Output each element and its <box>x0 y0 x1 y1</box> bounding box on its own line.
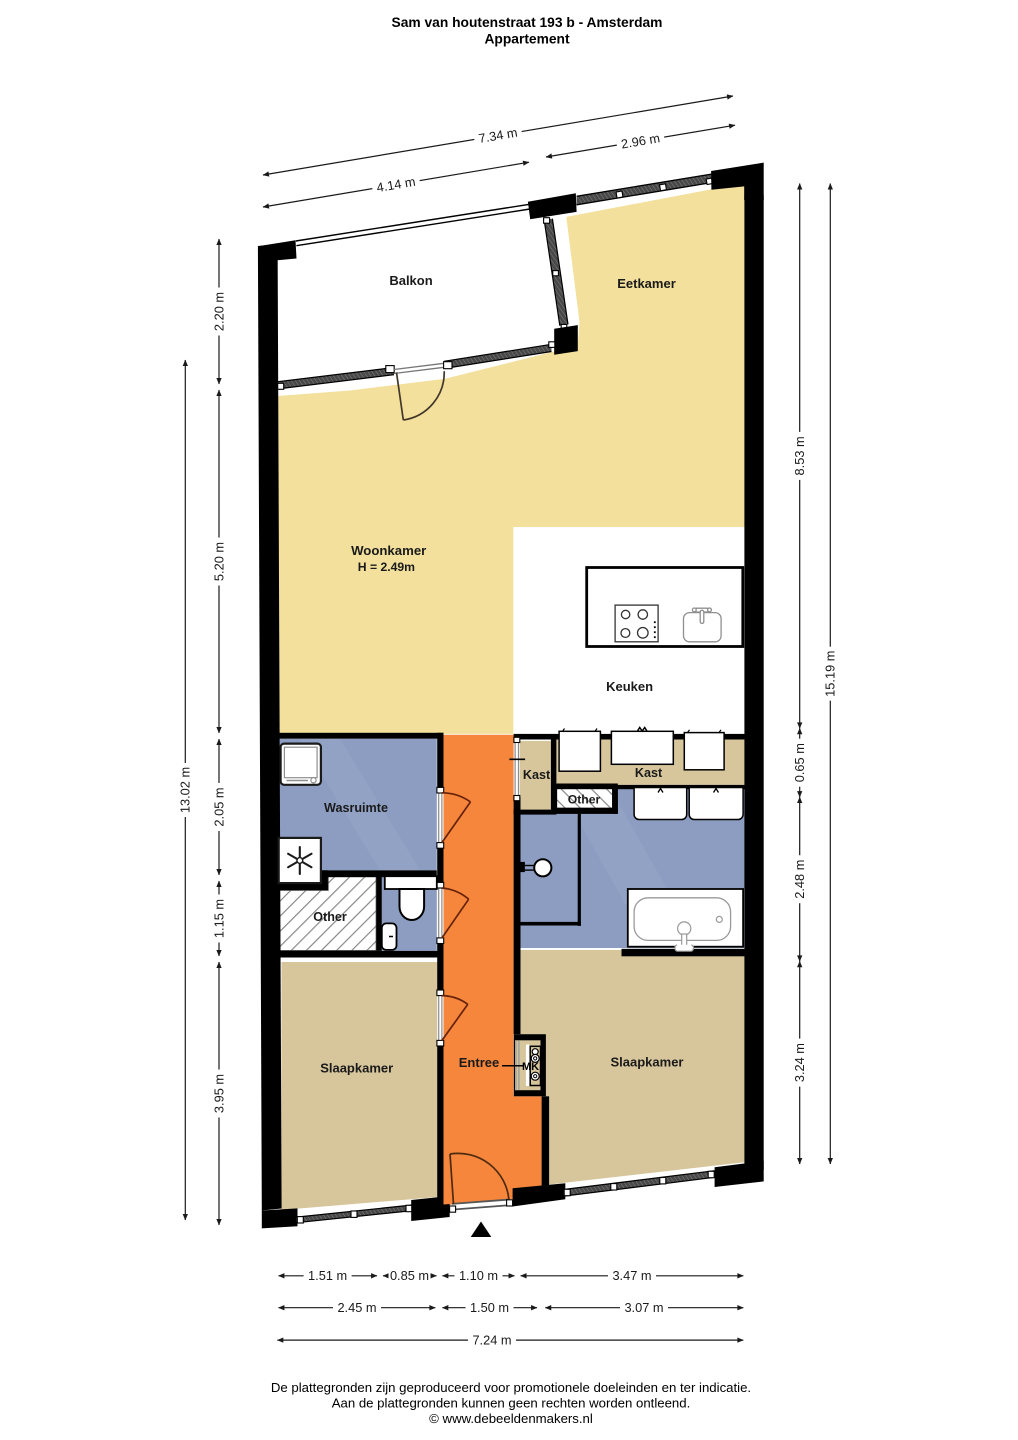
svg-text:Kast: Kast <box>523 768 551 782</box>
svg-text:Other: Other <box>568 793 601 807</box>
svg-text:Woonkamer: Woonkamer <box>351 543 426 558</box>
svg-text:1.15 m: 1.15 m <box>211 899 226 938</box>
svg-text:2.48 m: 2.48 m <box>792 860 807 899</box>
svg-text:MK: MK <box>522 1061 539 1073</box>
svg-text:15.19 m: 15.19 m <box>823 651 838 697</box>
svg-text:Balkon: Balkon <box>389 273 432 288</box>
svg-text:13.02 m: 13.02 m <box>178 767 193 813</box>
svg-text:1.50 m: 1.50 m <box>470 1300 509 1315</box>
svg-text:Keuken: Keuken <box>606 679 653 694</box>
svg-text:1.51 m: 1.51 m <box>308 1268 347 1283</box>
svg-text:Slaapkamer: Slaapkamer <box>320 1061 393 1076</box>
svg-text:2.05 m: 2.05 m <box>211 787 226 826</box>
svg-text:7.24 m: 7.24 m <box>472 1332 511 1347</box>
svg-text:Entree: Entree <box>459 1055 499 1070</box>
svg-text:H = 2.49m: H = 2.49m <box>358 560 415 574</box>
svg-text:0.65 m: 0.65 m <box>792 743 807 782</box>
svg-text:Other: Other <box>313 910 347 924</box>
svg-text:Kast: Kast <box>635 766 663 780</box>
svg-text:3.07 m: 3.07 m <box>624 1300 663 1315</box>
svg-text:2.20 m: 2.20 m <box>211 292 226 331</box>
svg-text:Aan de plattegronden kunnen ge: Aan de plattegronden kunnen geen rechten… <box>332 1396 691 1411</box>
svg-text:3.24 m: 3.24 m <box>792 1043 807 1082</box>
svg-text:3.95 m: 3.95 m <box>211 1074 226 1113</box>
svg-text:De plattegronden zijn geproduc: De plattegronden zijn geproduceerd voor … <box>271 1380 751 1395</box>
svg-text:Wasruimte: Wasruimte <box>324 801 388 815</box>
svg-text:2.45 m: 2.45 m <box>337 1300 376 1315</box>
svg-text:3.47 m: 3.47 m <box>612 1268 651 1283</box>
svg-text:8.53 m: 8.53 m <box>792 436 807 475</box>
svg-text:Eetkamer: Eetkamer <box>617 276 676 291</box>
svg-text:© www.debeeldenmakers.nl: © www.debeeldenmakers.nl <box>429 1411 593 1426</box>
svg-text:5.20 m: 5.20 m <box>211 542 226 581</box>
svg-text:1.10 m: 1.10 m <box>459 1268 498 1283</box>
svg-text:Appartement: Appartement <box>484 32 569 47</box>
svg-text:Sam van houtenstraat 193 b - A: Sam van houtenstraat 193 b - Amsterdam <box>392 15 663 30</box>
svg-text:Slaapkamer: Slaapkamer <box>611 1055 684 1070</box>
svg-text:0.85 m: 0.85 m <box>390 1268 429 1283</box>
